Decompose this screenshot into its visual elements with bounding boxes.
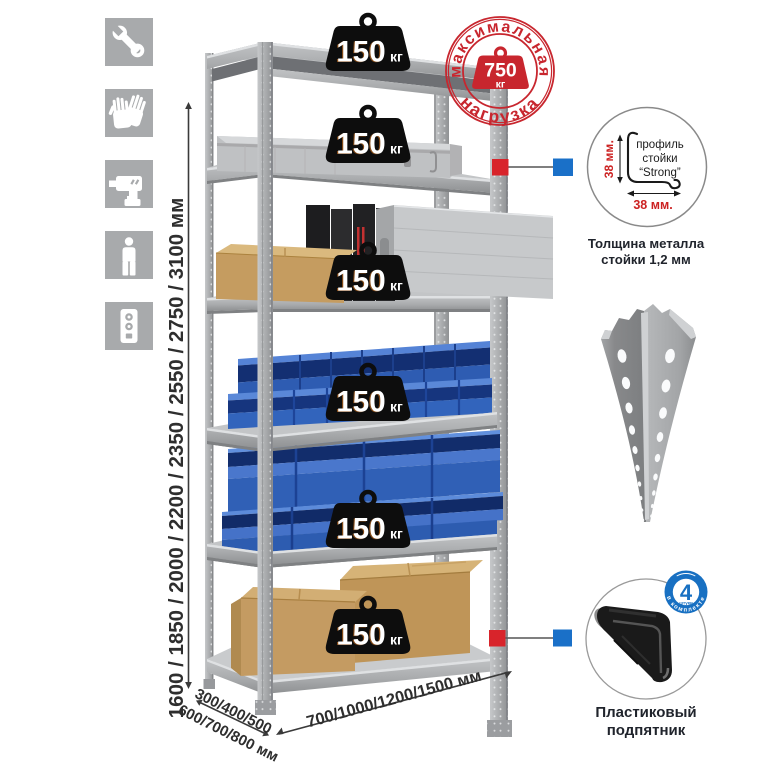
svg-text:150: 150 <box>336 386 385 419</box>
svg-text:150: 150 <box>336 36 385 69</box>
svg-text:стойки: стойки <box>642 153 677 165</box>
svg-text:кг: кг <box>390 526 403 542</box>
svg-text:кг: кг <box>390 399 403 415</box>
svg-text:150: 150 <box>336 265 385 298</box>
svg-text:Пластиковый: Пластиковый <box>595 704 696 721</box>
svg-text:150: 150 <box>336 513 385 546</box>
svg-text:1600 / 1850 / 2000 / 2200 / 23: 1600 / 1850 / 2000 / 2200 / 2350 / 2550 … <box>165 198 188 718</box>
svg-text:профиль: профиль <box>636 139 684 151</box>
svg-text:кг: кг <box>496 79 506 91</box>
svg-text:150: 150 <box>336 619 385 652</box>
svg-text:“Strong”: “Strong” <box>639 167 681 179</box>
svg-text:штуки: штуки <box>679 601 693 606</box>
svg-text:кг: кг <box>390 278 403 294</box>
svg-text:38 мм.: 38 мм. <box>633 198 672 212</box>
svg-text:кг: кг <box>390 632 403 648</box>
svg-text:подпятник: подпятник <box>607 722 686 739</box>
svg-text:кг: кг <box>390 49 403 65</box>
svg-text:стойки 1,2 мм: стойки 1,2 мм <box>601 252 691 267</box>
svg-text:кг: кг <box>390 141 403 157</box>
svg-text:150: 150 <box>336 128 385 161</box>
svg-text:Толщина металла: Толщина металла <box>588 236 705 251</box>
svg-text:38 мм․: 38 мм․ <box>602 140 616 178</box>
